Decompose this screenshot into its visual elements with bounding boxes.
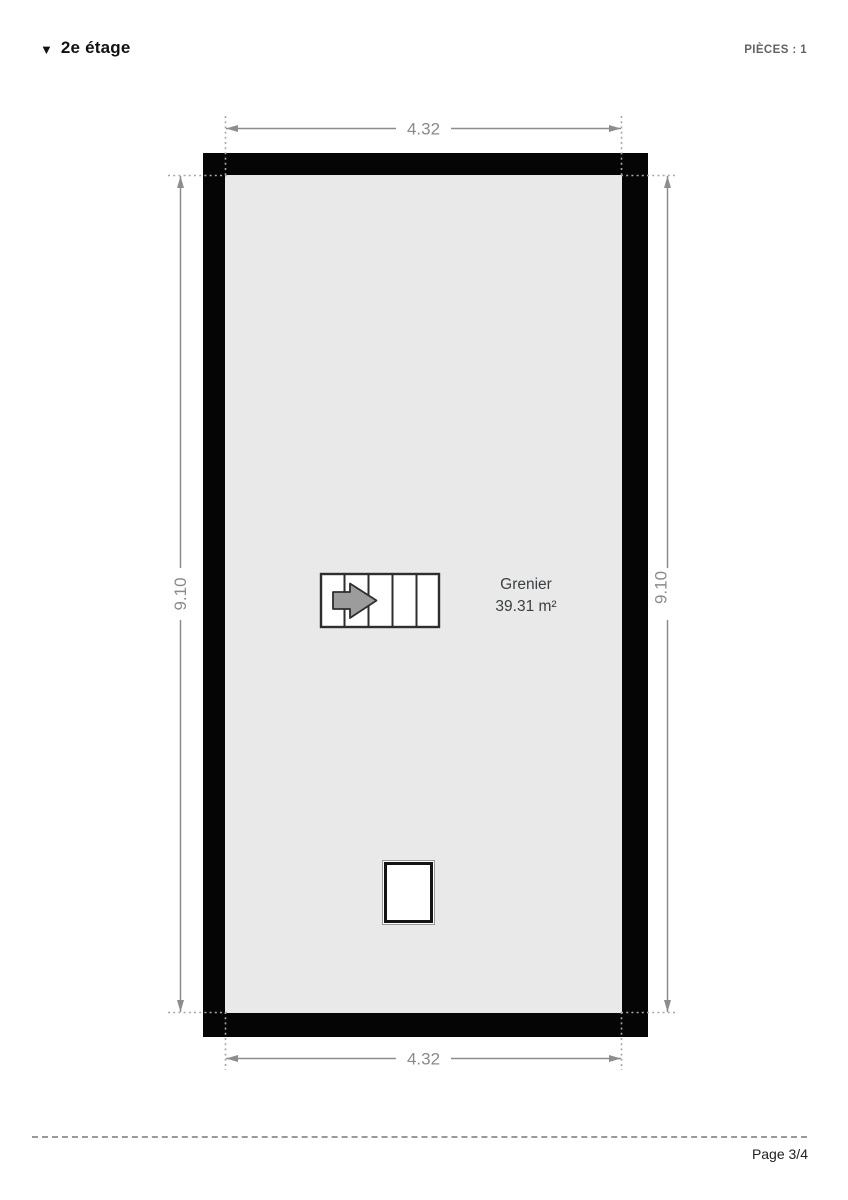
stairs-symbol	[321, 574, 439, 627]
footer-divider	[32, 1136, 807, 1138]
room-area-label: 39.31 m²	[495, 598, 556, 615]
dimension-label-top: 4.32	[407, 120, 440, 139]
skylight-window-symbol	[383, 861, 435, 925]
dimension-label-bottom: 4.32	[407, 1050, 440, 1069]
floor-plan-canvas: 4.32 4.32 9.10 9.10 Grenier 39.31 m²	[0, 0, 848, 1200]
dimension-label-left: 9.10	[171, 577, 190, 610]
dimension-label-right: 9.10	[652, 571, 671, 604]
room-name-label: Grenier	[500, 576, 552, 593]
page-number-label: Page 3/4	[752, 1146, 808, 1162]
